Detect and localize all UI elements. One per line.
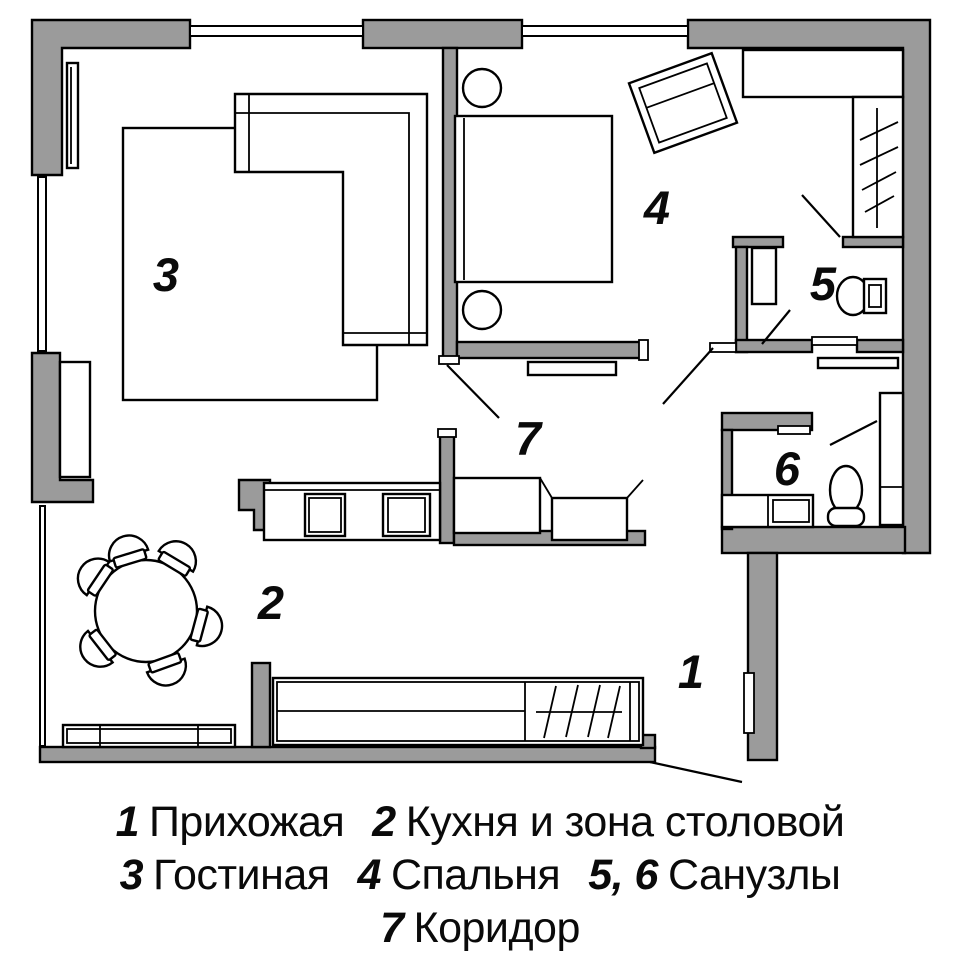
room-label-5: 5 (810, 257, 837, 310)
wall-room5-bottom-a (736, 340, 812, 352)
kitchen-fridge (552, 498, 627, 540)
door-swing-bath6 (830, 421, 877, 445)
left-radiator (60, 362, 90, 477)
legend-name-3: Гостиная (153, 849, 329, 902)
nightstand-top (463, 69, 501, 107)
window-left-1 (38, 177, 46, 351)
legend-name-2: Кухня и зона столовой (406, 796, 845, 849)
legend-row-2: 3 Гостиная 4 Спальня 5, 6 Санузлы (106, 849, 855, 902)
cap-bedroom-wall-end (639, 340, 648, 360)
legend-num-5: 5, 6 (588, 849, 658, 902)
room-label-6: 6 (774, 442, 801, 495)
wall-bedroom-south (457, 342, 645, 358)
legend-num-2: 2 (372, 796, 395, 849)
legend-row-1: 1 Прихожая 2 Кухня и зона столовой (102, 796, 859, 849)
corridor-console (528, 362, 616, 375)
room-living (67, 63, 427, 400)
wall-top-middle (363, 20, 522, 48)
wall-room5-bottom-b (857, 340, 903, 352)
legend-entry-2: 2 Кухня и зона столовой (372, 796, 844, 849)
wall-hallway-stub (252, 663, 270, 747)
wall-room5-left (736, 247, 747, 352)
floor-plan-svg: 3 4 5 6 7 2 1 (0, 0, 960, 796)
cap-kitchen-stub-top (438, 429, 456, 437)
wall-closet-room5-a (733, 237, 783, 247)
legend-num-6: 7 (380, 902, 403, 955)
room-label-2: 2 (257, 576, 284, 629)
legend-name-6: Коридор (414, 902, 580, 955)
bath6-shelf (818, 358, 898, 368)
cap-nook-left (710, 343, 736, 352)
bath6-cabinet (880, 393, 903, 525)
wall-bottom (40, 747, 655, 762)
legend-num-3: 3 (120, 849, 143, 902)
floor-plan-page: 3 4 5 6 7 2 1 1 Прихожая 2 Кухня и зона … (0, 0, 960, 960)
room-label-1: 1 (678, 645, 704, 698)
wall-kitchen-stub (440, 436, 454, 543)
toilet6-base (828, 508, 864, 526)
legend-entry-1: 1 Прихожая (116, 796, 345, 849)
legend-num-1: 1 (116, 796, 139, 849)
armchair (629, 53, 737, 153)
kitchen-unit-persp-2 (627, 480, 643, 498)
room-bedroom (455, 50, 903, 375)
room-label-3: 3 (153, 248, 179, 301)
door-swing-bath5-top (802, 195, 840, 237)
room-hallway (273, 678, 643, 745)
bath5-cabinet (752, 248, 776, 304)
window-left-glazing (40, 506, 45, 746)
legend-entry-5: 5, 6 Санузлы (588, 849, 840, 902)
kitchen-sink (305, 494, 345, 536)
legend-row-3: 7 Коридор (366, 902, 594, 955)
wardrobe-right (853, 97, 903, 237)
legend-entry-6: 7 Коридор (380, 902, 580, 955)
window-top-1 (190, 26, 363, 36)
cap-divider-end (439, 356, 459, 364)
threshold-room6 (778, 426, 810, 434)
legend-entry-3: 3 Гостиная (120, 849, 330, 902)
legend-name-5: Санузлы (668, 849, 840, 902)
kitchen-cooktop (383, 494, 430, 536)
wall-closet-room5-b (843, 237, 903, 247)
bed (455, 116, 612, 282)
wardrobe-top (743, 50, 903, 97)
legend-name-1: Прихожая (149, 796, 344, 849)
door-swing-entrance (650, 762, 742, 782)
room-label-4: 4 (643, 181, 670, 234)
room-label-7: 7 (515, 412, 543, 465)
entrance-door-panel (744, 673, 754, 733)
tv-panel (67, 63, 78, 168)
nightstand-bottom (463, 291, 501, 329)
kitchen-unit-persp-1 (540, 478, 552, 498)
window-top-2 (522, 26, 688, 36)
threshold-room5 (812, 337, 857, 345)
room-bath6 (722, 358, 903, 527)
door-swing-bedroom (663, 348, 713, 404)
legend-num-4: 4 (358, 849, 381, 902)
kitchen-tall-unit (454, 478, 540, 533)
wall-room6-bottom (722, 527, 905, 553)
legend-entry-4: 4 Спальня (358, 849, 561, 902)
legend-name-4: Спальня (391, 849, 560, 902)
legend: 1 Прихожая 2 Кухня и зона столовой 3 Гос… (0, 796, 960, 955)
door-swing-living-corridor (447, 365, 499, 418)
